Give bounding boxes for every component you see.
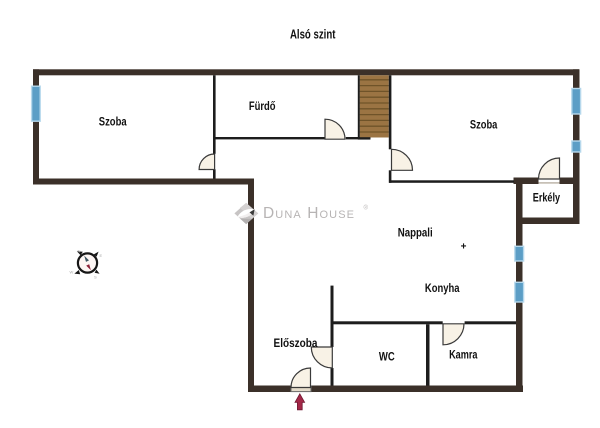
- svg-text:W: W: [70, 270, 74, 275]
- svg-text:Szoba: Szoba: [470, 118, 498, 132]
- svg-text:WC: WC: [379, 350, 395, 364]
- svg-text:N: N: [78, 249, 81, 254]
- svg-text:Fürdő: Fürdő: [249, 99, 276, 113]
- svg-text:Kamra: Kamra: [449, 347, 478, 361]
- svg-text:Erkély: Erkély: [533, 191, 561, 205]
- svg-text:Előszoba: Előszoba: [274, 336, 318, 350]
- svg-text:Konyha: Konyha: [425, 281, 460, 295]
- svg-text:Nappali: Nappali: [398, 226, 433, 240]
- svg-text:E: E: [100, 253, 103, 258]
- svg-text:S: S: [94, 275, 97, 280]
- svg-text:+: +: [461, 242, 467, 253]
- svg-text:Alsó szint: Alsó szint: [290, 27, 336, 42]
- svg-text:Szoba: Szoba: [99, 115, 127, 129]
- svg-text:®: ®: [364, 205, 369, 212]
- svg-text:Duna House: Duna House: [263, 205, 355, 222]
